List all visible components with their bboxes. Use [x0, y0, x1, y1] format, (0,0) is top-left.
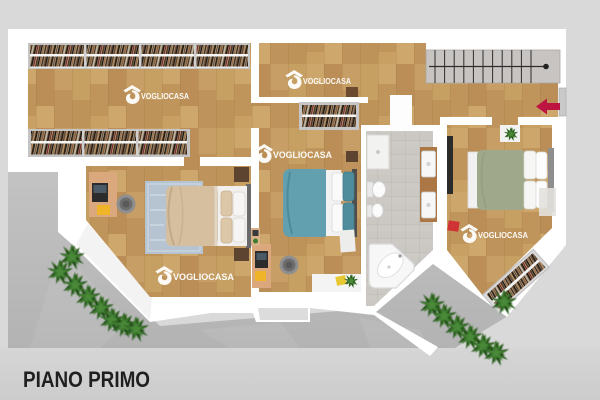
- svg-text:VOGLIOCASA: VOGLIOCASA: [141, 92, 189, 101]
- svg-text:VOGLIOCASA: VOGLIOCASA: [478, 231, 528, 240]
- svg-text:VOGLIOCASA: VOGLIOCASA: [273, 150, 332, 160]
- svg-text:PIANO PRIMO: PIANO PRIMO: [23, 367, 150, 392]
- svg-text:VOGLIOCASA: VOGLIOCASA: [303, 77, 351, 86]
- svg-text:VOGLIOCASA: VOGLIOCASA: [173, 272, 234, 282]
